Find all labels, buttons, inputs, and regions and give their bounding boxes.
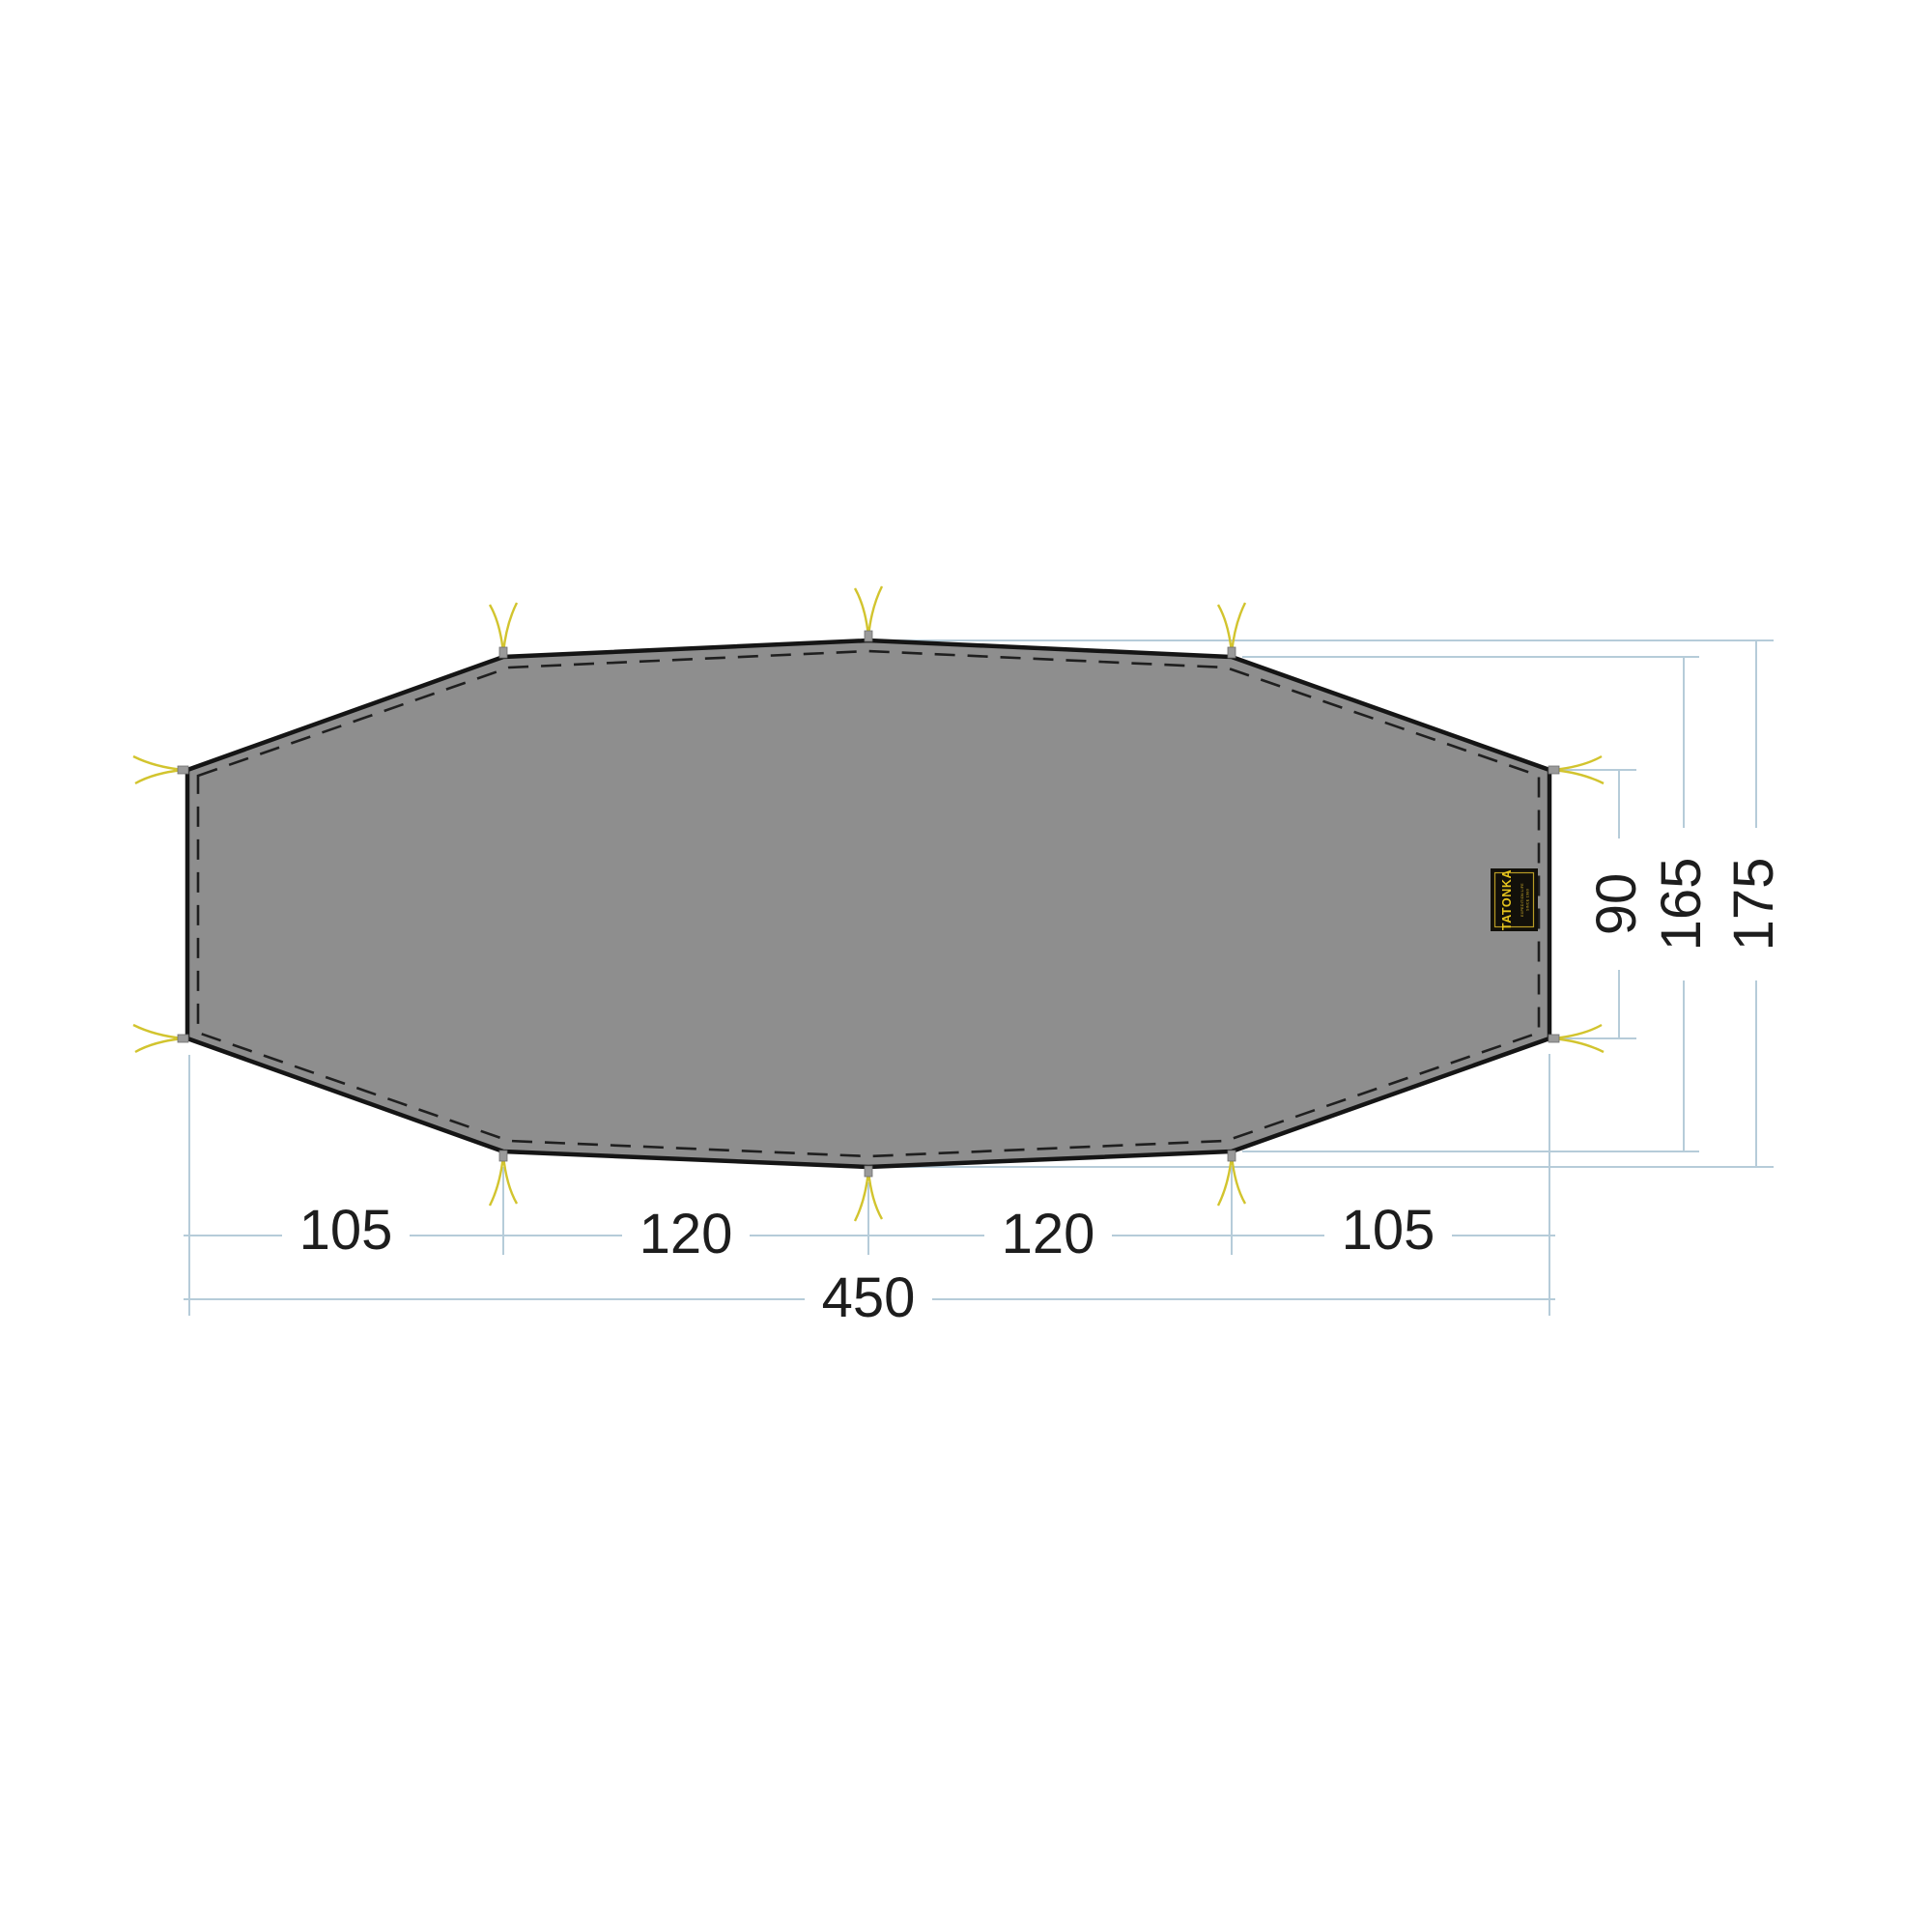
brand-label-since: SINCE 1980	[1526, 889, 1530, 911]
tent-footprint-diagram: TATONKA EXPEDITION LIFE SINCE 1980 105 1…	[0, 0, 1932, 1932]
tie-loop-top-middle	[855, 586, 882, 641]
dimension-label-105-right: 105	[1342, 1199, 1435, 1262]
brand-label-wordmark: TATONKA	[1500, 869, 1514, 930]
tie-loop-left-bottom	[133, 1025, 188, 1052]
dimension-label-105-left: 105	[299, 1199, 393, 1262]
dimension-label-165: 165	[1650, 858, 1713, 952]
brand-label: TATONKA EXPEDITION LIFE SINCE 1980	[1491, 868, 1538, 931]
dimension-label-450-total: 450	[822, 1266, 916, 1329]
diagram-canvas: TATONKA EXPEDITION LIFE SINCE 1980 105 1…	[0, 0, 1932, 1932]
tie-loop-left-top	[133, 756, 188, 783]
brand-label-background	[1491, 868, 1538, 931]
tie-loop-top-right	[1218, 603, 1245, 658]
footprint-shape	[187, 640, 1549, 1167]
tie-loop-top-left	[490, 603, 517, 658]
dimension-label-120-left: 120	[639, 1203, 733, 1265]
dimension-label-90: 90	[1585, 873, 1648, 936]
dimension-label-120-right: 120	[1002, 1203, 1095, 1265]
dimension-label-175: 175	[1722, 858, 1785, 952]
brand-label-tagline: EXPEDITION LIFE	[1520, 883, 1524, 917]
